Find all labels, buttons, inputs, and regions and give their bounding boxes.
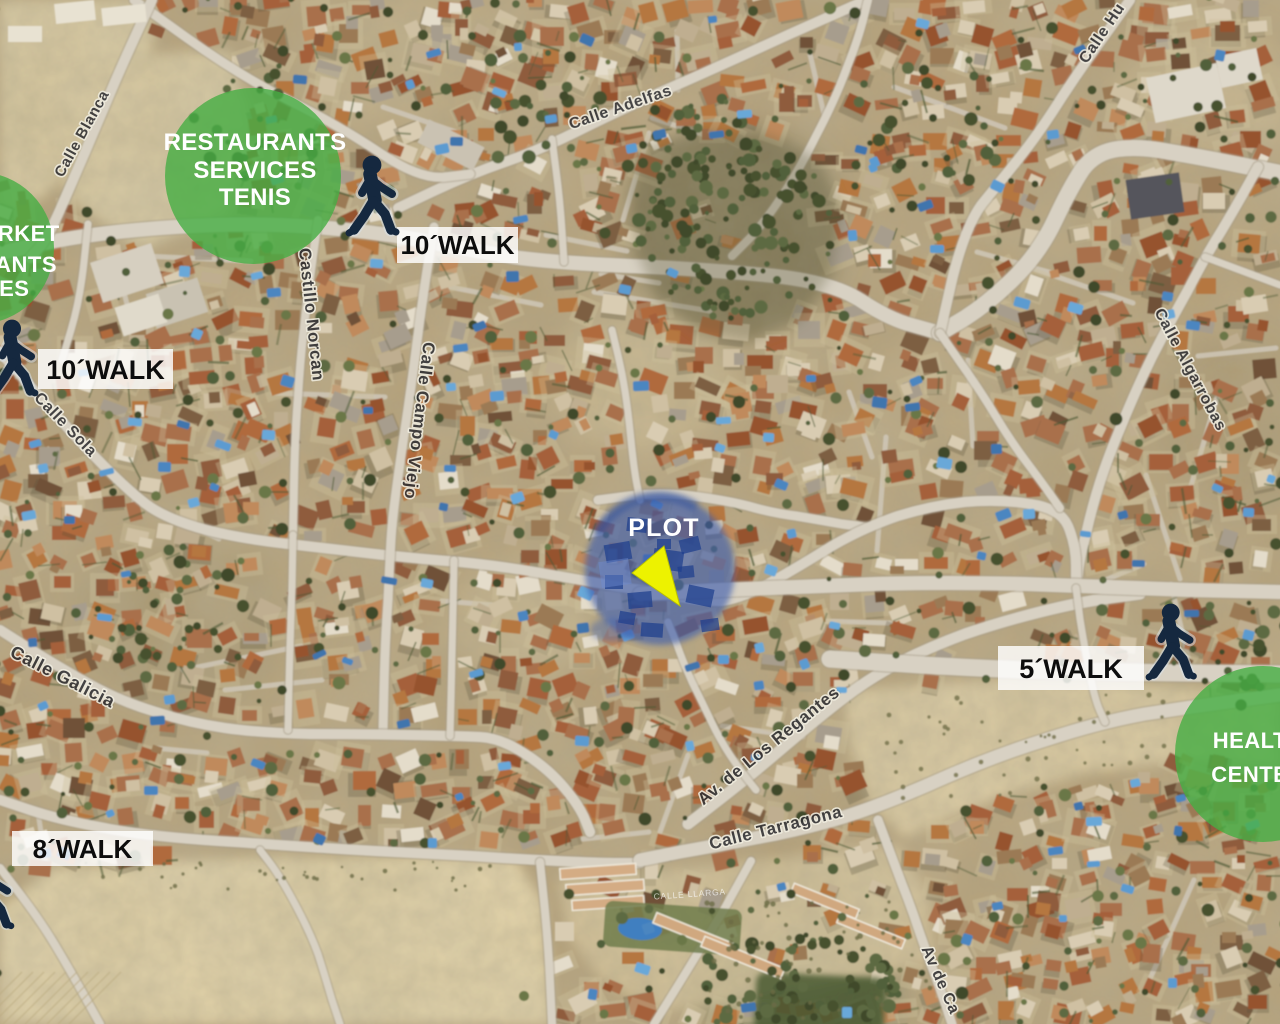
svg-text:SERVICES: SERVICES bbox=[0, 276, 29, 301]
svg-text:CENTER: CENTER bbox=[1211, 762, 1280, 787]
svg-text:PLOT: PLOT bbox=[628, 514, 699, 542]
svg-text:RESTAURANTS: RESTAURANTS bbox=[164, 129, 347, 156]
svg-text:TENIS: TENIS bbox=[219, 184, 291, 211]
svg-text:10´WALK: 10´WALK bbox=[400, 230, 514, 260]
svg-text:SUPERMARKET: SUPERMARKET bbox=[0, 221, 60, 246]
svg-text:RESTAURANTS: RESTAURANTS bbox=[0, 252, 57, 277]
svg-text:10´WALK: 10´WALK bbox=[46, 355, 165, 385]
svg-text:HEALTH: HEALTH bbox=[1213, 728, 1280, 753]
svg-text:5´WALK: 5´WALK bbox=[1019, 654, 1123, 684]
svg-text:8´WALK: 8´WALK bbox=[33, 834, 133, 864]
svg-text:SERVICES: SERVICES bbox=[193, 157, 316, 184]
